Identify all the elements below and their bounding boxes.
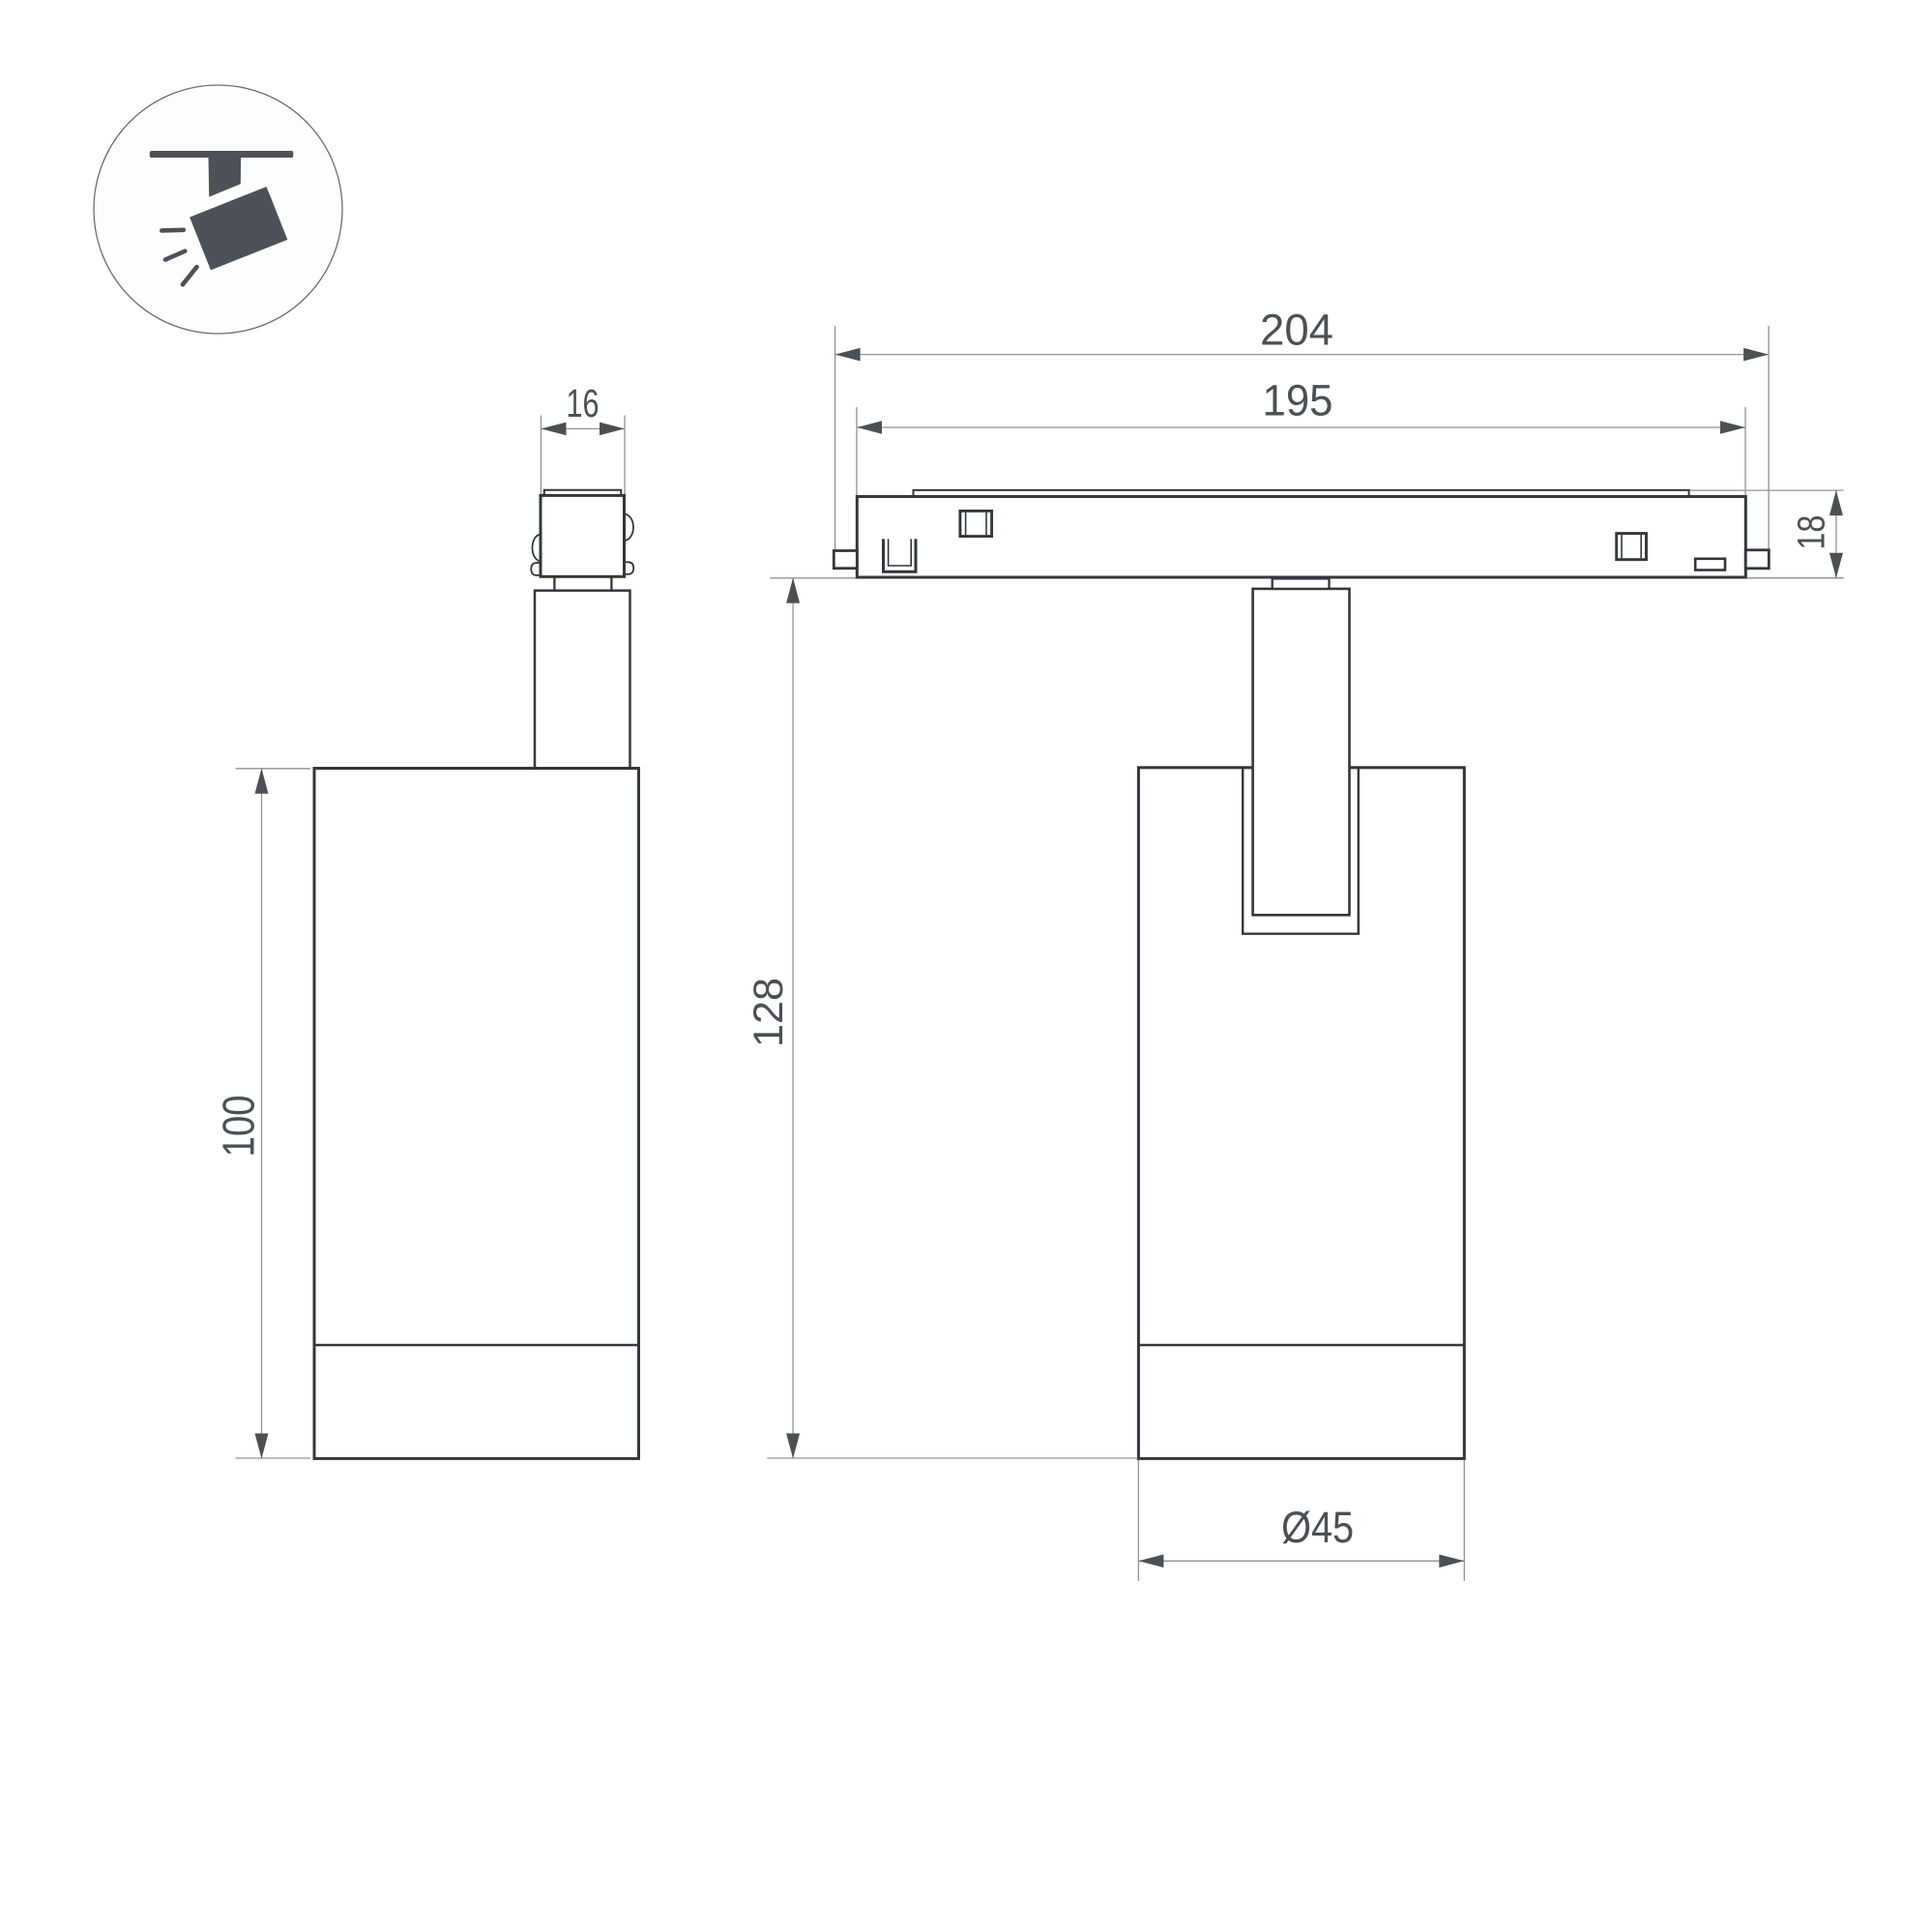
svg-text:18: 18	[1791, 515, 1833, 550]
svg-text:16: 16	[567, 381, 600, 425]
svg-text:195: 195	[1263, 376, 1333, 425]
svg-text:Ø45: Ø45	[1281, 1503, 1354, 1552]
svg-text:128: 128	[746, 978, 792, 1047]
svg-text:204: 204	[1260, 306, 1333, 355]
svg-text:100: 100	[214, 1096, 264, 1157]
